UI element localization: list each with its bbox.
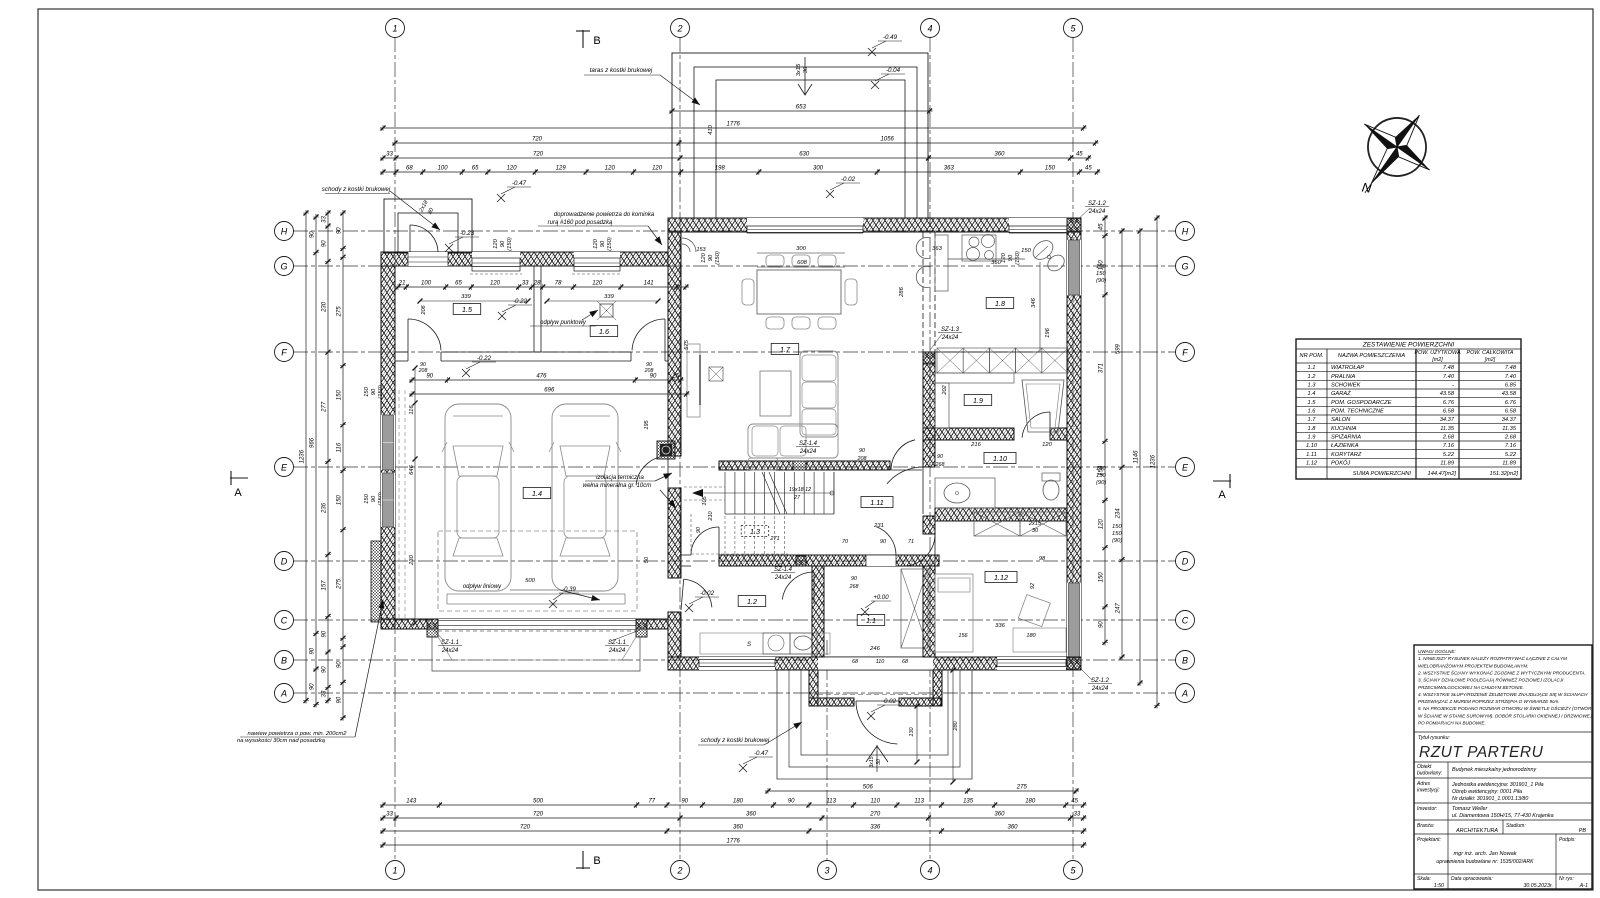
- svg-text:1.8: 1.8: [995, 299, 1005, 308]
- svg-text:65: 65: [455, 281, 462, 287]
- svg-text:43.58: 43.58: [1502, 391, 1517, 397]
- svg-text:45: 45: [1085, 166, 1092, 172]
- svg-text:2. WSZYSTKIE ŚCIANY WYKONAĆ ZG: 2. WSZYSTKIE ŚCIANY WYKONAĆ ZGODNIE Z WY…: [1417, 670, 1586, 676]
- svg-text:110: 110: [870, 799, 880, 805]
- svg-text:300: 300: [796, 246, 806, 252]
- svg-text:286: 286: [899, 286, 905, 297]
- svg-text:1.1: 1.1: [866, 616, 876, 625]
- svg-text:6.76: 6.76: [1505, 400, 1517, 406]
- svg-text:2x15: 2x15: [1028, 521, 1042, 527]
- svg-text:150: 150: [1045, 166, 1056, 172]
- svg-text:90: 90: [371, 495, 377, 502]
- svg-text:90: 90: [788, 799, 795, 805]
- svg-text:120: 120: [652, 166, 663, 172]
- svg-text:45: 45: [1071, 799, 1078, 805]
- svg-text:90: 90: [1008, 254, 1014, 261]
- svg-text:277: 277: [322, 401, 328, 413]
- svg-text:65: 65: [472, 166, 479, 172]
- svg-text:19x18,12: 19x18,12: [789, 487, 811, 493]
- svg-text:113: 113: [914, 799, 924, 805]
- svg-text:90: 90: [880, 539, 887, 545]
- svg-text:Data opracowania:: Data opracowania:: [1451, 876, 1493, 882]
- svg-text:POW. CAŁKOWITA: POW. CAŁKOWITA: [1466, 350, 1513, 356]
- svg-text:90: 90: [337, 227, 343, 234]
- svg-text:Nr rys:: Nr rys:: [1559, 876, 1574, 882]
- svg-text:120: 120: [493, 238, 499, 248]
- svg-text:720: 720: [533, 812, 544, 818]
- svg-text:68: 68: [406, 166, 413, 172]
- svg-text:90: 90: [500, 240, 506, 247]
- svg-text:371: 371: [1099, 363, 1105, 373]
- svg-text:150: 150: [364, 493, 370, 503]
- svg-text:28: 28: [533, 281, 541, 287]
- svg-text:SALON: SALON: [1331, 417, 1351, 423]
- svg-text:120: 120: [592, 281, 603, 287]
- svg-text:F: F: [281, 348, 287, 358]
- svg-text:1.5: 1.5: [462, 305, 473, 314]
- svg-text:1146: 1146: [1134, 450, 1140, 464]
- svg-text:-0.02: -0.02: [841, 176, 856, 183]
- svg-text:90: 90: [708, 254, 714, 261]
- svg-text:33: 33: [322, 690, 328, 697]
- svg-text:68: 68: [902, 659, 908, 665]
- svg-text:nawiew powietrza o pow. min. 2: nawiew powietrza o pow. min. 200cm2: [248, 731, 348, 737]
- svg-text:113: 113: [826, 799, 836, 805]
- svg-text:RZUT PARTERU: RZUT PARTERU: [1419, 744, 1544, 761]
- svg-text:90: 90: [937, 454, 943, 460]
- svg-text:(150): (150): [507, 237, 513, 251]
- svg-text:71: 71: [908, 539, 914, 545]
- svg-text:336: 336: [995, 623, 1005, 629]
- svg-text:A-1: A-1: [1579, 883, 1588, 889]
- svg-text:4. WSZYSTKIE SŁUPY/RDZENIE ŻEL: 4. WSZYSTKIE SŁUPY/RDZENIE ŻELBETOWE ZNA…: [1418, 691, 1588, 697]
- svg-text:1.10: 1.10: [993, 454, 1007, 463]
- svg-text:1.2: 1.2: [747, 597, 757, 606]
- svg-text:33: 33: [386, 152, 393, 158]
- svg-text:653: 653: [796, 105, 807, 111]
- svg-text:(90): (90): [1096, 278, 1106, 284]
- svg-text:-: -: [1452, 383, 1454, 389]
- svg-text:720: 720: [532, 137, 543, 143]
- svg-text:360: 360: [994, 812, 1005, 818]
- svg-text:196: 196: [1045, 327, 1051, 337]
- svg-text:[m2]: [m2]: [1431, 357, 1443, 363]
- svg-text:506: 506: [863, 785, 874, 791]
- svg-text:24x24: 24x24: [441, 648, 459, 654]
- svg-text:POKÓJ: POKÓJ: [1331, 460, 1350, 467]
- svg-text:90: 90: [696, 527, 702, 533]
- svg-text:90: 90: [371, 388, 377, 395]
- svg-text:ŁAZIENKA: ŁAZIENKA: [1331, 443, 1359, 449]
- svg-text:120: 120: [701, 252, 707, 262]
- svg-text:budowlany:: budowlany:: [1417, 771, 1443, 777]
- svg-text:966: 966: [310, 437, 316, 448]
- svg-text:4: 4: [927, 24, 932, 34]
- svg-text:157: 157: [322, 580, 328, 591]
- svg-text:90: 90: [851, 576, 857, 582]
- svg-text:275: 275: [337, 306, 343, 318]
- svg-text:na wysokości 30cm nad posadzką: na wysokości 30cm nad posadzką: [237, 738, 326, 744]
- svg-text:216: 216: [970, 442, 981, 448]
- svg-text:C: C: [281, 616, 288, 626]
- svg-text:129: 129: [556, 166, 567, 172]
- svg-text:575: 575: [684, 339, 690, 349]
- svg-text:1.2: 1.2: [1308, 374, 1317, 380]
- svg-text:6.58: 6.58: [1443, 409, 1455, 415]
- svg-text:uprawnienia budowlane nr: 1535: uprawnienia budowlane nr: 1535/002/ARK: [1436, 859, 1534, 865]
- svg-text:130: 130: [909, 726, 915, 736]
- svg-text:363: 363: [944, 166, 955, 172]
- svg-text:120: 120: [605, 166, 616, 172]
- svg-text:5.22: 5.22: [1443, 452, 1455, 458]
- svg-text:7.48: 7.48: [1505, 365, 1517, 371]
- svg-text:236: 236: [322, 502, 328, 514]
- svg-text:SZ-1.1: SZ-1.1: [608, 640, 626, 646]
- svg-text:120: 120: [1001, 252, 1007, 262]
- svg-text:1.12: 1.12: [1306, 461, 1318, 467]
- svg-text:Obręb ewidencyjny: 0001 Piła: Obręb ewidencyjny: 0001 Piła: [1452, 789, 1522, 795]
- svg-text:Budynek mieszkalny jednorodzin: Budynek mieszkalny jednorodzinny: [1452, 767, 1537, 773]
- svg-text:230: 230: [409, 554, 415, 565]
- svg-text:(150): (150): [607, 237, 613, 251]
- svg-text:77: 77: [648, 799, 655, 805]
- svg-text:1.4: 1.4: [1308, 391, 1316, 397]
- svg-text:150: 150: [1099, 572, 1105, 583]
- svg-text:275: 275: [337, 578, 343, 590]
- svg-text:Nr działki: 301901_1.0001.13/8: Nr działki: 301901_1.0001.13/80: [1452, 796, 1528, 802]
- svg-text:346: 346: [1031, 297, 1037, 307]
- svg-text:608: 608: [797, 260, 807, 266]
- svg-text:PRALNIA: PRALNIA: [1331, 374, 1356, 380]
- svg-text:150: 150: [364, 386, 370, 396]
- svg-text:-0.22: -0.22: [477, 355, 492, 362]
- svg-text:500: 500: [525, 578, 535, 584]
- svg-text:A: A: [1218, 489, 1226, 501]
- svg-text:-0.47: -0.47: [754, 750, 769, 757]
- svg-text:E: E: [1182, 463, 1189, 473]
- svg-text:100: 100: [421, 281, 432, 287]
- svg-text:90: 90: [1099, 621, 1105, 628]
- svg-text:68: 68: [852, 659, 858, 665]
- svg-text:7.16: 7.16: [1505, 443, 1517, 449]
- svg-text:105: 105: [702, 495, 708, 505]
- svg-text:1056: 1056: [881, 137, 895, 143]
- svg-text:POM. GOSPODARCZE: POM. GOSPODARCZE: [1331, 400, 1392, 406]
- svg-text:24x24: 24x24: [774, 575, 792, 581]
- svg-text:B: B: [593, 855, 600, 867]
- svg-text:208: 208: [644, 368, 654, 374]
- svg-text:336: 336: [870, 825, 881, 831]
- svg-text:90: 90: [310, 231, 316, 238]
- svg-text:150: 150: [337, 494, 343, 505]
- svg-text:taras z kostki brukowej: taras z kostki brukowej: [590, 67, 653, 74]
- svg-text:-0.49: -0.49: [883, 34, 898, 41]
- svg-text:90: 90: [337, 696, 343, 703]
- svg-text:206: 206: [421, 304, 427, 315]
- svg-text:ul. Diamentowa 150H/15, 77-430: ul. Diamentowa 150H/15, 77-430 Krajenka: [1452, 813, 1554, 819]
- svg-text:1.5: 1.5: [1308, 400, 1317, 406]
- svg-text:NR POM.: NR POM.: [1300, 353, 1324, 359]
- svg-text:270: 270: [869, 812, 881, 818]
- svg-text:SZ-1.4: SZ-1.4: [774, 567, 793, 573]
- svg-text:izolacja termiczna: izolacja termiczna: [596, 475, 644, 481]
- svg-text:POM. TECHNICZNE: POM. TECHNICZNE: [1331, 409, 1384, 415]
- svg-text:1: 1: [392, 866, 397, 876]
- svg-text:339: 339: [461, 294, 471, 300]
- svg-text:300: 300: [813, 166, 824, 172]
- svg-text:92: 92: [1030, 583, 1036, 589]
- svg-text:B: B: [1182, 656, 1188, 666]
- svg-text:151.32[m2]: 151.32[m2]: [1490, 471, 1519, 477]
- svg-text:135: 135: [963, 799, 974, 805]
- svg-text:1. NINIEJSZY RYSUNEK NALEŻY RO: 1. NINIEJSZY RYSUNEK NALEŻY ROZPATRYWAĆ …: [1418, 655, 1567, 661]
- svg-text:Projektant:: Projektant:: [1417, 837, 1442, 843]
- svg-text:500: 500: [533, 799, 544, 805]
- svg-text:150: 150: [1096, 473, 1106, 479]
- svg-text:476: 476: [536, 374, 547, 380]
- svg-text:odpływ liniowy: odpływ liniowy: [463, 584, 502, 590]
- svg-text:43.58: 43.58: [1440, 391, 1455, 397]
- svg-text:5.22: 5.22: [1505, 452, 1517, 458]
- svg-text:2: 2: [676, 866, 682, 876]
- svg-text:6.76: 6.76: [1443, 400, 1455, 406]
- svg-text:Stadium:: Stadium:: [1506, 823, 1526, 829]
- svg-text:34.37: 34.37: [1502, 417, 1517, 423]
- svg-text:150: 150: [1096, 466, 1106, 472]
- svg-text:30: 30: [803, 66, 809, 73]
- svg-text:24x24: 24x24: [1088, 209, 1106, 215]
- svg-text:PO POMIARACH NA BUDOWIE.: PO POMIARACH NA BUDOWIE.: [1418, 721, 1486, 726]
- svg-text:Obiekt: Obiekt: [1417, 764, 1432, 770]
- svg-text:50: 50: [644, 556, 650, 563]
- svg-text:27: 27: [793, 495, 801, 501]
- svg-text:116: 116: [409, 405, 415, 415]
- svg-text:234: 234: [1116, 508, 1122, 520]
- svg-text:144.47[m2]: 144.47[m2]: [1428, 471, 1457, 477]
- svg-text:599: 599: [1116, 343, 1122, 354]
- svg-text:-0.23: -0.23: [460, 230, 475, 237]
- svg-text:1.6: 1.6: [599, 327, 609, 336]
- svg-text:45: 45: [1076, 152, 1083, 158]
- svg-text:90: 90: [310, 647, 316, 654]
- svg-text:11.89: 11.89: [1502, 461, 1517, 467]
- svg-text:WIELOBRANŻOWYM PROJEKTEM BUDOW: WIELOBRANŻOWYM PROJEKTEM BUDOWLANYM.: [1418, 662, 1529, 668]
- svg-text:247: 247: [1116, 603, 1122, 615]
- svg-text:2.68: 2.68: [1504, 435, 1517, 441]
- svg-text:98: 98: [1039, 556, 1046, 562]
- svg-text:(90): (90): [1096, 480, 1106, 486]
- svg-text:1.4: 1.4: [532, 489, 542, 498]
- svg-text:90: 90: [600, 240, 606, 247]
- svg-text:153: 153: [696, 247, 706, 253]
- svg-text:B: B: [593, 35, 600, 47]
- svg-text:110: 110: [876, 659, 885, 665]
- svg-text:116: 116: [337, 442, 343, 452]
- svg-text:24x24: 24x24: [1091, 686, 1109, 692]
- svg-text:275: 275: [1016, 785, 1028, 791]
- svg-text:34.37: 34.37: [1440, 417, 1455, 423]
- svg-text:2.68: 2.68: [1442, 435, 1455, 441]
- svg-text:B: B: [281, 656, 287, 666]
- svg-text:21: 21: [398, 281, 406, 287]
- svg-text:360: 360: [746, 812, 757, 818]
- svg-text:H: H: [281, 227, 288, 237]
- svg-text:PRZECIWWILGOCIOWEJ NA CHUDYM B: PRZECIWWILGOCIOWEJ NA CHUDYM BETONIE.: [1418, 685, 1524, 690]
- svg-text:30: 30: [1032, 528, 1039, 534]
- svg-text:180: 180: [1026, 633, 1036, 639]
- svg-text:Jednostka ewidencyjna: 301901_: Jednostka ewidencyjna: 301901_1 Piła: [1451, 782, 1544, 788]
- svg-text:1236: 1236: [300, 449, 306, 463]
- svg-text:3x15: 3x15: [869, 756, 875, 767]
- svg-text:schody z kostki brukowej: schody z kostki brukowej: [322, 186, 391, 193]
- svg-text:120: 120: [593, 238, 599, 248]
- svg-text:F: F: [1182, 348, 1188, 358]
- svg-text:180: 180: [733, 799, 744, 805]
- svg-text:120: 120: [490, 281, 501, 287]
- svg-text:208: 208: [857, 456, 867, 462]
- svg-text:7.40: 7.40: [1505, 374, 1517, 380]
- svg-text:A: A: [280, 689, 287, 699]
- svg-text:33: 33: [522, 281, 529, 287]
- svg-text:1.9: 1.9: [1308, 435, 1317, 441]
- svg-text:33: 33: [322, 216, 328, 223]
- svg-text:33: 33: [386, 812, 393, 818]
- svg-text:S: S: [747, 642, 751, 648]
- svg-text:339: 339: [604, 294, 614, 300]
- svg-text:SPIŻARNIA: SPIŻARNIA: [1331, 434, 1361, 441]
- svg-text:Branża:: Branża:: [1417, 823, 1435, 829]
- svg-text:-0.04: -0.04: [886, 67, 901, 74]
- svg-text:3. ŚCIANY DZIAŁOWE PODLEGAJĄ R: 3. ŚCIANY DZIAŁOWE PODLEGAJĄ RÓWNIEŻ POZ…: [1418, 677, 1564, 683]
- svg-text:1776: 1776: [727, 122, 741, 128]
- svg-text:odpływ punktowy: odpływ punktowy: [540, 320, 587, 326]
- svg-text:696: 696: [544, 388, 555, 394]
- svg-text:(150): (150): [1015, 251, 1021, 265]
- svg-text:268: 268: [935, 462, 945, 468]
- svg-text:210: 210: [708, 510, 714, 521]
- svg-text:SZ-1.2: SZ-1.2: [1091, 678, 1110, 684]
- svg-text:90: 90: [310, 683, 316, 690]
- svg-text:3x15: 3x15: [796, 63, 802, 76]
- svg-text:1.11: 1.11: [870, 498, 883, 507]
- svg-text:SZ-1.2: SZ-1.2: [1088, 201, 1107, 207]
- svg-text:11.35: 11.35: [1502, 426, 1517, 432]
- svg-text:70: 70: [842, 539, 849, 545]
- svg-text:G: G: [280, 262, 287, 272]
- svg-text:(90): (90): [1112, 538, 1122, 544]
- svg-text:1.8: 1.8: [1308, 426, 1317, 432]
- svg-text:90: 90: [650, 374, 657, 380]
- svg-text:ARCHITEKTURA: ARCHITEKTURA: [1455, 828, 1498, 834]
- svg-text:7.16: 7.16: [1443, 443, 1455, 449]
- svg-text:45: 45: [1099, 223, 1105, 230]
- svg-text:30: 30: [876, 759, 882, 765]
- svg-text:Adres: Adres: [1416, 781, 1431, 787]
- svg-text:SCHOWEK: SCHOWEK: [1331, 383, 1361, 389]
- svg-text:363: 363: [932, 246, 942, 252]
- svg-text:1.3: 1.3: [1308, 383, 1317, 389]
- svg-text:230: 230: [322, 301, 328, 313]
- svg-text:1: 1: [392, 24, 397, 34]
- svg-text:UWAGI OGÓLNE:: UWAGI OGÓLNE:: [1418, 648, 1456, 654]
- svg-text:E: E: [281, 463, 288, 473]
- svg-text:2: 2: [676, 24, 682, 34]
- svg-text:30.05.2023r.: 30.05.2023r.: [1523, 883, 1553, 889]
- svg-text:NAZWA POMIESZCZENIA: NAZWA POMIESZCZENIA: [1338, 353, 1405, 359]
- svg-text:ZESTAWIENIE POWIERZCHNI: ZESTAWIENIE POWIERZCHNI: [1362, 342, 1455, 349]
- svg-text:280: 280: [953, 720, 959, 731]
- svg-text:wełna mineralna gr. 10cm: wełna mineralna gr. 10cm: [583, 483, 651, 489]
- svg-text:360: 360: [994, 152, 1005, 158]
- svg-text:120: 120: [1042, 442, 1052, 448]
- svg-text:720: 720: [533, 152, 544, 158]
- svg-text:KORYTARZ: KORYTARZ: [1331, 452, 1362, 458]
- svg-text:1.6: 1.6: [1308, 409, 1317, 415]
- svg-text:rurą #160 pod posadzką: rurą #160 pod posadzką: [548, 220, 613, 226]
- svg-text:202: 202: [942, 384, 948, 395]
- svg-text:1236: 1236: [1151, 454, 1157, 468]
- svg-text:90: 90: [426, 374, 433, 380]
- svg-text:24x24: 24x24: [799, 449, 817, 455]
- svg-text:5. NA PROJEKCIE PODANO ROZMIAR: 5. NA PROJEKCIE PODANO ROZMIAR OTWORU W …: [1418, 705, 1592, 711]
- svg-text:90: 90: [322, 240, 328, 247]
- svg-text:90: 90: [322, 666, 328, 673]
- svg-text:24x24: 24x24: [608, 648, 626, 654]
- svg-text:+0.00: +0.00: [873, 595, 889, 601]
- svg-text:4: 4: [927, 866, 932, 876]
- svg-text:A: A: [1181, 689, 1188, 699]
- svg-text:150: 150: [1096, 264, 1106, 270]
- svg-text:SUMA POWIERZCHNI: SUMA POWIERZCHNI: [1353, 471, 1412, 477]
- svg-text:208: 208: [418, 368, 428, 374]
- svg-text:-0.47: -0.47: [512, 180, 527, 187]
- svg-text:150: 150: [1096, 271, 1106, 277]
- svg-text:150: 150: [337, 390, 343, 401]
- svg-text:410: 410: [708, 124, 714, 134]
- svg-text:POW. UŻYTKOWA: POW. UŻYTKOWA: [1414, 349, 1461, 356]
- svg-text:11.35: 11.35: [1440, 426, 1455, 432]
- svg-text:360: 360: [733, 825, 744, 831]
- svg-text:3: 3: [824, 866, 829, 876]
- svg-text:143: 143: [406, 799, 417, 805]
- svg-text:1.7: 1.7: [780, 345, 791, 354]
- svg-text:150: 150: [1021, 248, 1031, 254]
- svg-text:150: 150: [1112, 524, 1122, 530]
- svg-text:195: 195: [644, 419, 650, 429]
- svg-text:SZ-1.4: SZ-1.4: [799, 441, 818, 447]
- svg-text:KUCHNIA: KUCHNIA: [1331, 426, 1357, 432]
- svg-text:1.9: 1.9: [973, 396, 983, 405]
- svg-text:1.7: 1.7: [1308, 417, 1317, 423]
- svg-text:90: 90: [337, 661, 343, 668]
- svg-text:-0.02: -0.02: [882, 698, 897, 705]
- svg-text:1:50: 1:50: [1434, 883, 1444, 889]
- svg-text:6.85: 6.85: [1505, 383, 1517, 389]
- svg-text:268: 268: [849, 584, 859, 590]
- svg-text:231: 231: [873, 523, 884, 529]
- svg-text:90: 90: [859, 448, 865, 454]
- svg-text:150: 150: [1112, 531, 1122, 537]
- svg-text:SZ-1.3: SZ-1.3: [941, 327, 960, 333]
- svg-text:D: D: [1182, 557, 1189, 567]
- svg-text:-0.39: -0.39: [562, 587, 576, 593]
- svg-text:doprowadzenie powietrza do kom: doprowadzenie powietrza do kominka: [554, 212, 655, 218]
- svg-text:H: H: [1182, 227, 1189, 237]
- svg-text:180: 180: [1025, 799, 1036, 805]
- svg-text:W ŚCIANIE W STANIE SUROWYM). D: W ŚCIANIE W STANIE SUROWYM). DOBÓR STOLA…: [1418, 712, 1593, 718]
- svg-text:120: 120: [1099, 518, 1105, 529]
- svg-text:1776: 1776: [727, 839, 741, 845]
